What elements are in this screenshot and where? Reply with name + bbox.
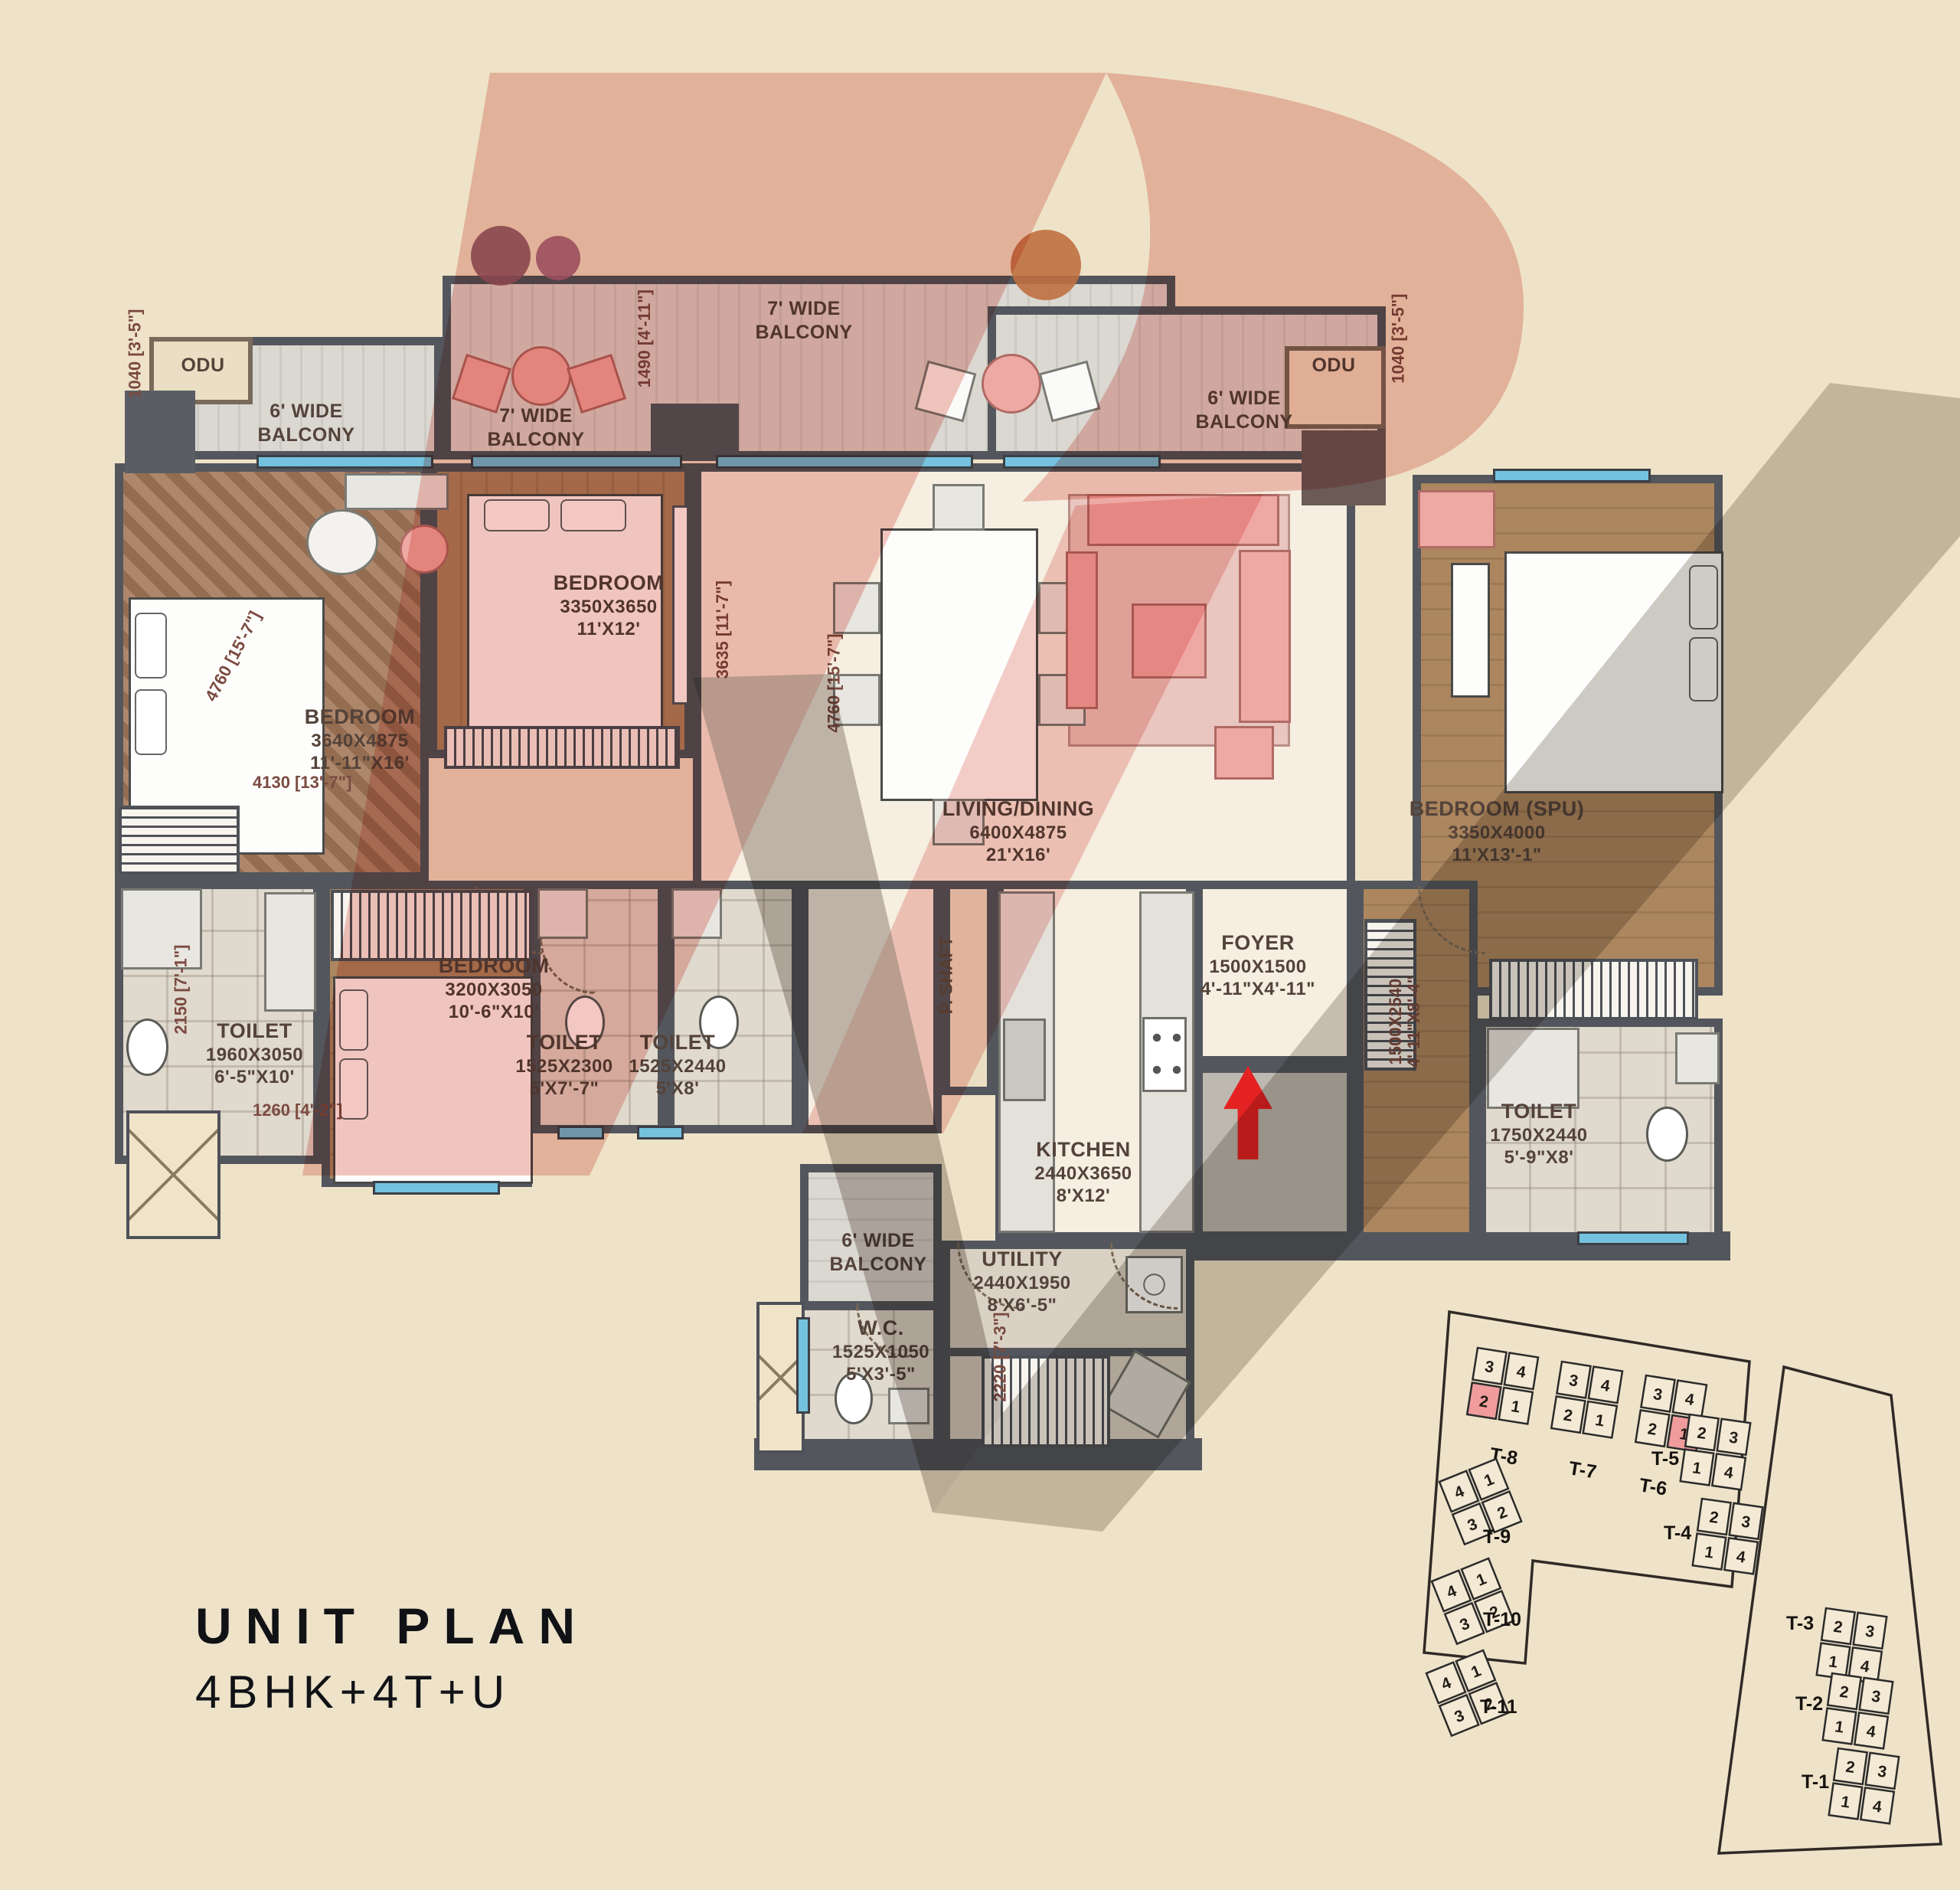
pillow-icon [1689, 637, 1718, 701]
dim-toilet1-w: 1260 [4'-2"] [253, 1101, 342, 1120]
sofa [1087, 494, 1279, 546]
room-label-bedroom-3: BEDROOM 3200X3050 10'-6"X10' [387, 953, 601, 1023]
dim-text: 4130 [13'-7"] [253, 773, 351, 792]
room-dim-mm: 1750X2440 [1490, 1124, 1587, 1146]
pshaft-text: P. SHAFT [936, 937, 955, 1015]
room-name: BEDROOM [305, 705, 416, 730]
service-block-right [1302, 430, 1386, 505]
balcony-bottom-label: 6' WIDE BALCONY [828, 1229, 928, 1276]
armchair [1214, 726, 1274, 780]
wardrobe [1489, 959, 1698, 1020]
room-name: KITCHEN [1036, 1137, 1131, 1162]
room-dim-mm: 1525X2440 [629, 1055, 726, 1077]
page-title: UNIT PLAN 4BHK+4T+U [195, 1597, 589, 1718]
dim-text: 2150 [7'-1"] [171, 945, 190, 1035]
title-line-2: 4BHK+4T+U [195, 1666, 589, 1718]
room-dim-ft: 11'X13'-1" [1452, 844, 1541, 866]
tower-t4: 2 3 1 4 [1693, 1499, 1762, 1574]
planter-icon [471, 226, 531, 286]
room-name: W.C. [857, 1316, 904, 1341]
tower-label: T-1 [1802, 1771, 1829, 1793]
room-dim-ft: 4'-11"X4'-11" [1200, 978, 1315, 1000]
room-dim-mm: 3200X3050 [445, 979, 542, 1001]
window [1493, 469, 1651, 482]
window [1003, 455, 1161, 469]
vanity [888, 1388, 929, 1424]
room-dim-ft: 11'X12' [577, 618, 641, 640]
balcony-right-label: 6' WIDE BALCONY [1171, 387, 1317, 433]
dim-text: 2220 [7'-3"] [990, 1313, 1009, 1402]
vanity [537, 888, 588, 939]
dim-bedroom2-h: 3635 [11'-7"] [714, 580, 732, 679]
dim-text: 3635 [11'-7"] [713, 580, 732, 679]
window [637, 1126, 684, 1140]
balcony-label-text: 7' WIDE BALCONY [731, 297, 877, 344]
title-line-1: UNIT PLAN [195, 1597, 589, 1655]
desk [1418, 490, 1495, 548]
tower-label: T-10 [1483, 1609, 1521, 1630]
room-label-bedroom-spu: BEDROOM (SPU) 3350X4000 11'X13'-1" [1378, 796, 1615, 866]
patio-table [982, 354, 1041, 414]
room-dim-mm: 3640X4875 [311, 730, 408, 752]
room-label-wc: W.C. 1525X1050 5'X3'-5" [810, 1316, 952, 1385]
sofa [1239, 550, 1291, 723]
dim-text: 4760 [15'-7"] [825, 633, 844, 732]
pillow-icon [484, 499, 550, 531]
room-name: BEDROOM (SPU) [1410, 796, 1585, 822]
tower-t5: 2 3 1 4 [1681, 1414, 1750, 1489]
window [1577, 1231, 1689, 1245]
patio-table [511, 346, 571, 406]
key-plan: .parc{fill:none;stroke:#2F2A25;stroke-wi… [1413, 1290, 1960, 1890]
room-label-toilet-1: TOILET 1960X3050 6'-5"X10' [165, 1019, 345, 1088]
window [471, 455, 682, 469]
balcony-label-text: 6' WIDE BALCONY [828, 1229, 928, 1276]
room-dim-ft: 10'-6"X10' [449, 1001, 540, 1023]
room-label-toilet-2: TOILET 1525X2300 5'X7'-7" [499, 1030, 629, 1100]
bench [1451, 563, 1490, 698]
dim-toilet1-h: 2150 [7'-1"] [171, 945, 190, 1035]
room-dim-mm: 3350X3650 [560, 596, 657, 618]
pshaft-label: P. SHAFT [936, 937, 956, 1015]
coffee-table [1132, 603, 1207, 679]
tower-t2: 2 3 1 4 [1823, 1673, 1893, 1748]
room-name: UTILITY [982, 1247, 1063, 1272]
dresser [345, 473, 449, 510]
pillow-icon [560, 499, 626, 531]
room-dim-mm: 1525X1050 [832, 1341, 929, 1363]
dim-living-h: 4760 [15'-7"] [825, 633, 844, 732]
tower-t10: 4 1 3 2 [1432, 1558, 1514, 1644]
tower-t1: 2 3 1 4 [1829, 1748, 1899, 1823]
dim-text: 1040 [3'-5"] [125, 309, 144, 399]
balcony-mid-label: 7' WIDE BALCONY [463, 404, 609, 451]
room-dim-ft: 5'-9"X8' [1504, 1146, 1574, 1169]
room-label-kitchen: KITCHEN 2440X3650 8'X12' [988, 1137, 1179, 1207]
unit-plan-page: 7' WIDE BALCONY 7' WIDE BALCONY 6' WIDE … [0, 0, 1960, 1890]
dining-chair [933, 484, 985, 531]
room-name: TOILET [217, 1019, 292, 1044]
odu-text: ODU [1312, 354, 1355, 378]
wardrobe [444, 726, 680, 769]
room-label-bedroom-1: BEDROOM 3640X4875 11'-11"X16' [260, 705, 459, 774]
room-dim-mm: 2440X3650 [1034, 1162, 1132, 1185]
vanity [1675, 1032, 1720, 1084]
room-name: FOYER [1221, 930, 1295, 956]
dim-odu-left: 1040 [3'-5"] [126, 309, 144, 399]
room-name: LIVING/DINING [942, 796, 1095, 822]
dim-stair: 2220 [7'-3"] [991, 1313, 1009, 1402]
room-label-bedroom-2: BEDROOM 3350X3650 11'X12' [505, 571, 712, 640]
tower-t8: 3 4 2 1 [1467, 1348, 1538, 1424]
room-dim-mm: 1500X1500 [1209, 956, 1306, 978]
dim-balcony-top: 1490 [4'-11"] [635, 289, 654, 387]
room-dim-ft: 5'X7'-7" [530, 1077, 599, 1100]
planter-icon [536, 236, 580, 280]
lift-shaft [126, 1110, 220, 1239]
dim-text: 1500X2540 [1386, 979, 1405, 1065]
room-label-living-dining: LIVING/DINING 6400X4875 21'X16' [907, 796, 1129, 866]
room-dim-ft: 5'X8' [656, 1077, 700, 1100]
room-name: TOILET [640, 1030, 716, 1055]
pillow-icon [135, 613, 167, 679]
tower-label: T-3 [1786, 1613, 1814, 1634]
pillow-icon [135, 689, 167, 755]
room-label-toilet-spu: TOILET 1750X2440 5'-9"X8' [1459, 1099, 1619, 1169]
room-dim-mm: 2440X1950 [973, 1272, 1070, 1294]
odu-left-label: ODU [172, 354, 234, 378]
window [256, 455, 433, 469]
wardrobe [331, 890, 532, 961]
tower-t11: 4 1 3 2 [1426, 1650, 1508, 1736]
fridge [1003, 1019, 1046, 1101]
window [557, 1126, 604, 1140]
room-dim-mm: 1525X2300 [515, 1055, 612, 1077]
tower-label: T-4 [1664, 1522, 1691, 1544]
service-block-middle [651, 404, 739, 461]
dim-text: 4'-11"X8'-4" [1404, 976, 1423, 1068]
room-name: BEDROOM [439, 953, 550, 979]
room-dim-ft: 6'-5"X10' [214, 1066, 295, 1088]
dim-text: 1490 [4'-11"] [635, 289, 654, 387]
wc-icon [1646, 1107, 1688, 1162]
dim-text: 1260 [4'-2"] [253, 1100, 342, 1120]
hob-icon [1142, 1017, 1187, 1092]
entrance-landing [1194, 1064, 1355, 1241]
odu-text: ODU [181, 354, 224, 378]
service-block-left [125, 391, 195, 473]
window [796, 1317, 810, 1414]
dim-odu-right: 1040 [3'-5"] [1389, 294, 1407, 384]
tower-label: T-7 [1567, 1457, 1598, 1483]
dim-spu-corridor: 1500X2540 4'-11"X8'-4" [1387, 976, 1423, 1068]
pillow-icon [1689, 565, 1718, 629]
room-dim-mm: 3350X4000 [1448, 822, 1545, 844]
room-name: TOILET [527, 1030, 603, 1055]
dining-chair [833, 582, 880, 634]
balcony-label-text: 6' WIDE BALCONY [1171, 387, 1317, 433]
dining-table [880, 528, 1038, 801]
balcony-top-label: 7' WIDE BALCONY [731, 297, 877, 344]
tower-t7: 3 4 2 1 [1551, 1362, 1622, 1437]
room-name: BEDROOM [554, 571, 665, 596]
room-label-foyer: FOYER 1500X1500 4'-11"X4'-11" [1170, 930, 1346, 1000]
tower-label: T-9 [1483, 1526, 1511, 1548]
balcony-label-text: 6' WIDE BALCONY [230, 400, 383, 446]
armchair [306, 509, 378, 575]
room-dim-ft: 8'X12' [1057, 1185, 1110, 1207]
passage [800, 881, 942, 1133]
balcony-label-text: 7' WIDE BALCONY [463, 404, 609, 451]
room-dim-ft: 21'X16' [986, 844, 1050, 866]
room-label-toilet-3: TOILET 1525X2440 5'X8' [612, 1030, 743, 1100]
tower-label: T-6 [1638, 1474, 1668, 1499]
room-dim-mm: 6400X4875 [969, 822, 1067, 844]
pouf [400, 525, 449, 574]
vanity [264, 892, 316, 1012]
dim-text: 1040 [3'-5"] [1388, 294, 1407, 384]
wardrobe [119, 806, 240, 875]
room-label-utility: UTILITY 2440X1950 8'X6'-5" [930, 1247, 1114, 1316]
dim-bedroom1-w: 4130 [13'-7"] [253, 773, 351, 792]
planter-icon [1011, 230, 1081, 300]
tower-t3: 2 3 1 4 [1817, 1608, 1886, 1683]
tower-label: T-11 [1480, 1696, 1517, 1718]
room-name: TOILET [1501, 1099, 1577, 1124]
shower [1487, 1028, 1579, 1109]
odu-right-label: ODU [1303, 354, 1364, 378]
tower-label: T-2 [1795, 1693, 1823, 1715]
room-dim-ft: 5'X3'-5" [846, 1363, 916, 1385]
vanity [671, 888, 722, 939]
window [373, 1181, 500, 1195]
balcony-left-label: 6' WIDE BALCONY [230, 400, 383, 446]
window [716, 455, 973, 469]
wc-icon [126, 1019, 168, 1076]
room-dim-mm: 1960X3050 [206, 1044, 303, 1066]
tv-console [1066, 551, 1098, 709]
room-dim-ft: 11'-11"X16' [310, 752, 410, 774]
tower-label: T-5 [1651, 1448, 1679, 1470]
